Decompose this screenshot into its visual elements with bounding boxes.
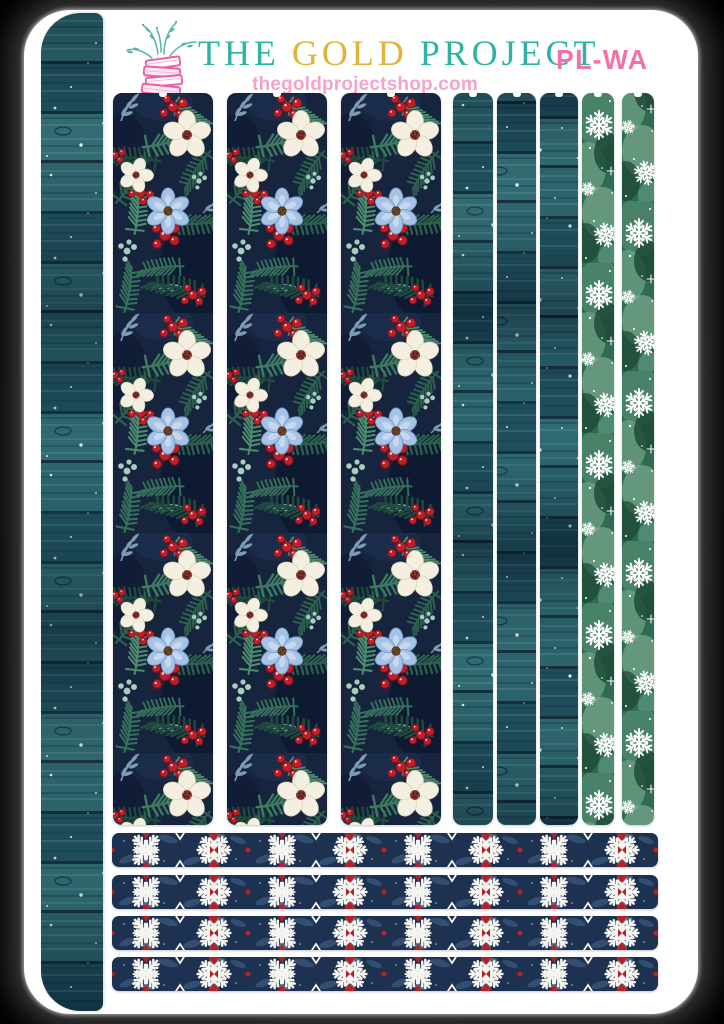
snowflake-washi-strip-2: [622, 93, 654, 825]
peel-notch: [555, 93, 563, 97]
wood-washi-strip-3: [540, 93, 578, 825]
nordic-washi-strip-3: [112, 916, 658, 950]
nordic-washi-strip-4: [112, 957, 658, 991]
wood-washi-strip-2: [497, 93, 536, 825]
peel-notch: [513, 93, 521, 97]
product-code: PL-WA: [556, 44, 648, 76]
snowflake-washi-strip-1: [582, 93, 614, 825]
peel-notch: [159, 93, 167, 97]
wood-texture-strip-left: [41, 13, 103, 1011]
floral-washi-strip-2: [227, 93, 327, 825]
brand-title-word-gold: GOLD: [292, 33, 408, 73]
peel-notch: [469, 93, 477, 97]
product-image-stage: THEGOLDPROJECT thegoldprojectshop.com PL…: [0, 0, 724, 1024]
nordic-washi-strip-2: [112, 875, 658, 909]
peel-notch: [634, 93, 642, 97]
brand-title-word-the: THE: [198, 33, 280, 73]
sticker-sheet-surface: THEGOLDPROJECT thegoldprojectshop.com PL…: [24, 10, 698, 1014]
peel-notch: [387, 93, 395, 97]
peel-notch: [594, 93, 602, 97]
brand-header: THEGOLDPROJECT thegoldprojectshop.com: [192, 34, 538, 96]
wood-washi-strip-1: [453, 93, 493, 825]
sticker-sheet-card: THEGOLDPROJECT thegoldprojectshop.com PL…: [24, 10, 698, 1014]
wood-texture-art: [41, 13, 103, 1011]
floral-washi-strip-1: [113, 93, 213, 825]
brand-title: THEGOLDPROJECT: [192, 34, 538, 72]
peel-notch: [273, 93, 281, 97]
nordic-washi-strip-1: [112, 833, 658, 867]
floral-washi-strip-3: [341, 93, 441, 825]
